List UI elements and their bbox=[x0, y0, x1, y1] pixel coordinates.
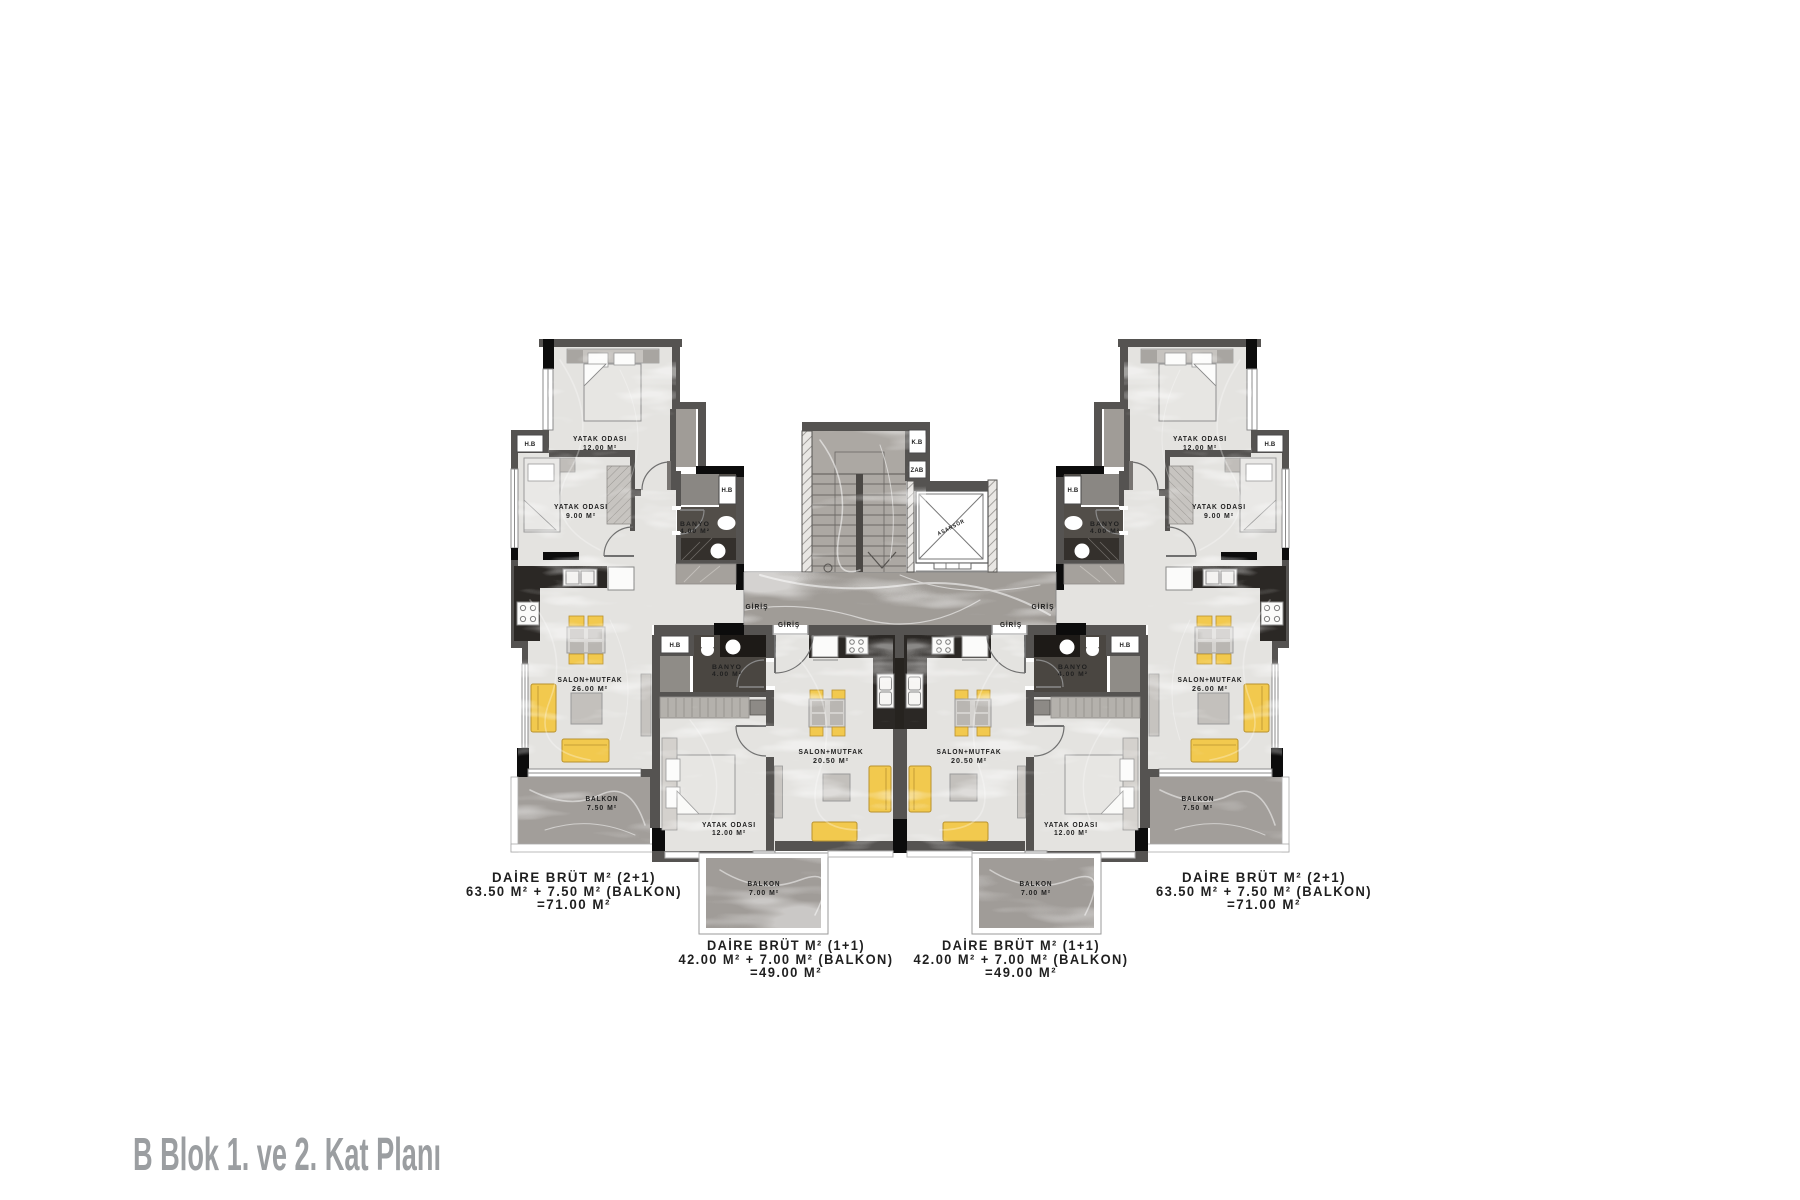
svg-text:20.50 M²: 20.50 M² bbox=[813, 756, 849, 765]
svg-text:=71.00 M²: =71.00 M² bbox=[1227, 897, 1301, 912]
svg-text:12.00 M²: 12.00 M² bbox=[1183, 443, 1217, 452]
svg-text:7.00 M²: 7.00 M² bbox=[749, 890, 779, 897]
svg-text:SALON+MUTFAK: SALON+MUTFAK bbox=[799, 747, 864, 756]
svg-text:=71.00 M²: =71.00 M² bbox=[537, 897, 611, 912]
svg-text:BALKON: BALKON bbox=[748, 881, 781, 888]
svg-text:YATAK ODASI: YATAK ODASI bbox=[573, 434, 627, 443]
svg-text:SALON+MUTFAK: SALON+MUTFAK bbox=[937, 747, 1002, 756]
svg-text:DAİRE BRÜT M² (2+1): DAİRE BRÜT M² (2+1) bbox=[1182, 870, 1346, 885]
svg-text:7.50 M²: 7.50 M² bbox=[1183, 805, 1213, 812]
svg-text:ZAB: ZAB bbox=[911, 468, 924, 474]
svg-text:DAİRE BRÜT M² (2+1): DAİRE BRÜT M² (2+1) bbox=[492, 870, 656, 885]
svg-text:DAİRE BRÜT M² (1+1): DAİRE BRÜT M² (1+1) bbox=[707, 938, 865, 953]
svg-text:BANYO: BANYO bbox=[1090, 521, 1120, 528]
svg-text:7.00 M²: 7.00 M² bbox=[1021, 890, 1051, 897]
svg-text:9.00 M²: 9.00 M² bbox=[1204, 511, 1234, 520]
svg-text:=49.00 M²: =49.00 M² bbox=[750, 965, 822, 980]
svg-text:H.B: H.B bbox=[1120, 643, 1131, 649]
svg-text:BANYO: BANYO bbox=[1058, 664, 1088, 671]
svg-text:YATAK ODASI: YATAK ODASI bbox=[1173, 434, 1227, 443]
svg-text:26.00 M²: 26.00 M² bbox=[572, 684, 608, 693]
svg-text:12.00 M²: 12.00 M² bbox=[712, 828, 746, 837]
svg-text:4.00 M²: 4.00 M² bbox=[1058, 671, 1088, 678]
svg-text:BALKON: BALKON bbox=[586, 796, 619, 803]
svg-text:BANYO: BANYO bbox=[680, 521, 710, 528]
svg-text:12.00 M²: 12.00 M² bbox=[583, 443, 617, 452]
svg-text:H.B: H.B bbox=[670, 643, 681, 649]
svg-text:GİRİŞ: GİRİŞ bbox=[778, 621, 800, 629]
svg-text:SALON+MUTFAK: SALON+MUTFAK bbox=[1178, 675, 1243, 684]
svg-text:4.00 M²: 4.00 M² bbox=[680, 528, 710, 535]
svg-text:BALKON: BALKON bbox=[1020, 881, 1053, 888]
svg-text:H.B: H.B bbox=[1068, 488, 1079, 494]
svg-text:K.B: K.B bbox=[912, 440, 923, 446]
svg-text:20.50 M²: 20.50 M² bbox=[951, 756, 987, 765]
svg-text:SALON+MUTFAK: SALON+MUTFAK bbox=[558, 675, 623, 684]
svg-text:4.00 M²: 4.00 M² bbox=[1090, 528, 1120, 535]
svg-text:H.B: H.B bbox=[525, 442, 536, 448]
svg-text:=49.00 M²: =49.00 M² bbox=[985, 965, 1057, 980]
svg-text:B Blok 1. ve 2. Kat Planı: B Blok 1. ve 2. Kat Planı bbox=[133, 1128, 441, 1180]
svg-text:26.00 M²: 26.00 M² bbox=[1192, 684, 1228, 693]
svg-text:GİRİŞ: GİRİŞ bbox=[1032, 603, 1055, 611]
svg-text:DAİRE BRÜT M² (1+1): DAİRE BRÜT M² (1+1) bbox=[942, 938, 1100, 953]
svg-text:12.00 M²: 12.00 M² bbox=[1054, 828, 1088, 837]
svg-text:9.00 M²: 9.00 M² bbox=[566, 511, 596, 520]
svg-text:YATAK ODASI: YATAK ODASI bbox=[554, 502, 608, 511]
svg-text:BALKON: BALKON bbox=[1182, 796, 1215, 803]
svg-text:GİRİŞ: GİRİŞ bbox=[746, 603, 769, 611]
svg-text:H.B: H.B bbox=[1265, 442, 1276, 448]
svg-text:4.00 M²: 4.00 M² bbox=[712, 671, 742, 678]
svg-text:7.50 M²: 7.50 M² bbox=[587, 805, 617, 812]
svg-text:YATAK ODASI: YATAK ODASI bbox=[1192, 502, 1246, 511]
svg-text:GİRİŞ: GİRİŞ bbox=[1000, 621, 1022, 629]
svg-text:H.B: H.B bbox=[722, 488, 733, 494]
svg-text:BANYO: BANYO bbox=[712, 664, 742, 671]
